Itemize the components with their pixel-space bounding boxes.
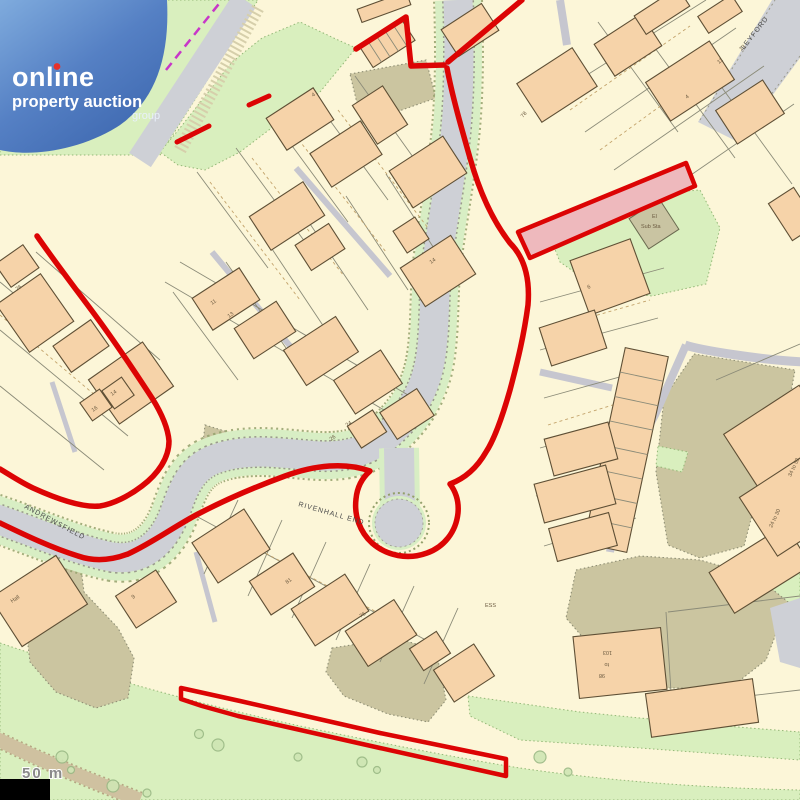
tree-icon — [143, 789, 151, 797]
logo-word-property-auction: property auction — [12, 93, 142, 111]
tree-icon — [195, 730, 204, 739]
tree-icon — [212, 739, 224, 751]
logo-word-group: group — [132, 110, 160, 122]
logo-i-dot-icon — [54, 63, 61, 70]
tree-icon — [68, 767, 75, 774]
tree-icon — [294, 753, 302, 761]
substation-label: Sub Sta — [641, 224, 662, 230]
tree-icon — [357, 757, 367, 767]
plot-number: 103 — [603, 649, 612, 655]
substation-label-el: El — [652, 214, 657, 220]
scale-bar — [0, 779, 50, 800]
map-canvas: ANDREWSFIELD RIVENHALL END LEYFORD El Su… — [0, 0, 800, 800]
tree-icon — [56, 751, 68, 763]
tree-icon — [534, 751, 546, 763]
plot-number: to — [604, 661, 609, 667]
logo-word-online: online — [12, 62, 95, 92]
tree-icon — [374, 767, 381, 774]
tree-icon — [564, 768, 572, 776]
plot-number: 98 — [599, 672, 605, 678]
ess-label: ESS — [485, 603, 496, 609]
tree-icon — [107, 780, 119, 792]
